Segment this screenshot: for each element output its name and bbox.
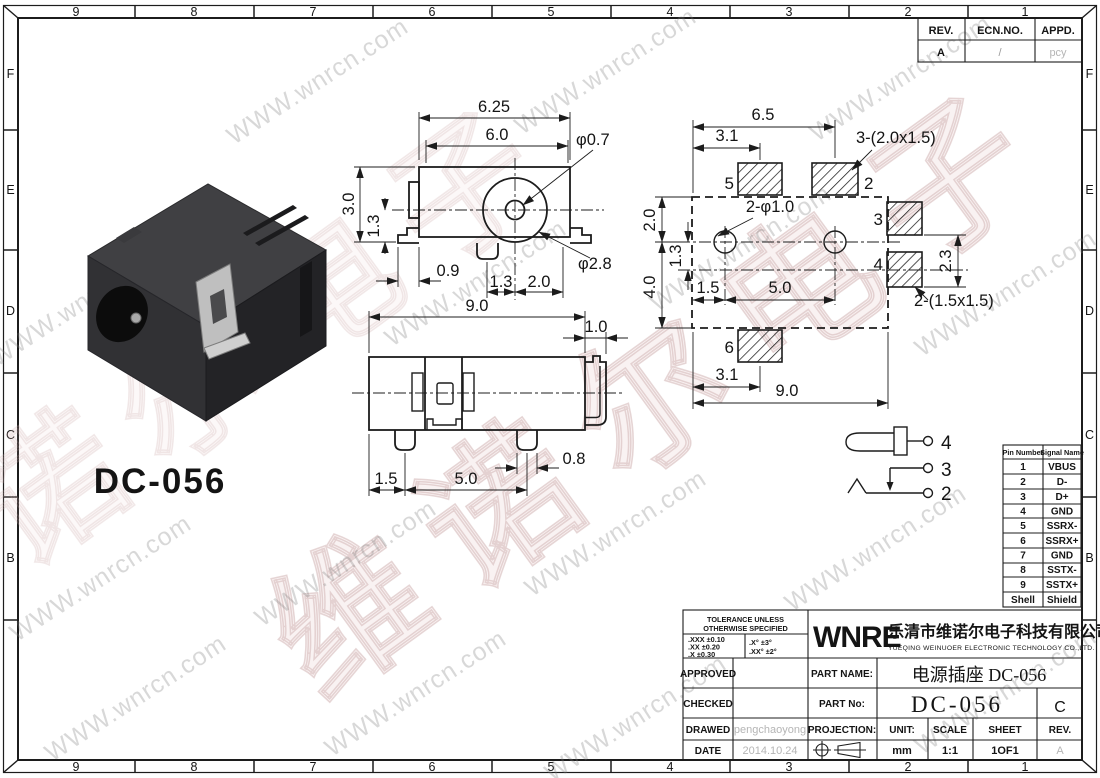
site-watermark: WWW.wnrcn.com <box>40 629 232 767</box>
projection-symbol <box>813 741 866 759</box>
zone-label: B <box>1085 551 1093 565</box>
sheet-label: SHEET <box>988 725 1021 736</box>
signal-name: SSTX- <box>1047 565 1076 576</box>
part-no-value: DC-056 <box>911 692 1003 717</box>
dim-label: 5.0 <box>769 279 792 297</box>
dim-label: 2.0 <box>641 209 659 232</box>
dim-label: 9.0 <box>776 382 799 400</box>
dim-label: φ0.7 <box>576 131 610 149</box>
zone-label: 1 <box>1022 5 1029 19</box>
zone-label: C <box>1085 428 1094 442</box>
zone-label: 9 <box>73 760 80 774</box>
pin-number: Shell <box>1011 595 1035 606</box>
pad-number: 2 <box>864 174 873 193</box>
pad-3 <box>887 202 922 235</box>
pin-table-header: Pin Number <box>1003 448 1044 457</box>
signal-name: SSTX+ <box>1046 580 1078 591</box>
dim-label: 3.0 <box>340 193 358 216</box>
signal-name: SSRX- <box>1047 521 1078 532</box>
rev-col-header: REV. <box>929 25 954 37</box>
zone-label: D <box>6 304 15 318</box>
dim-label: 5.0 <box>455 470 478 488</box>
part-name-value: 电源插座 DC-056 <box>912 665 1047 685</box>
pad-number: 6 <box>725 338 734 357</box>
signal-name: GND <box>1051 507 1073 518</box>
zone-label: 5 <box>548 5 555 19</box>
zone-label: 3 <box>786 760 793 774</box>
pad-number: 3 <box>874 210 883 229</box>
pad-5 <box>738 163 782 195</box>
dim-label: 0.8 <box>563 450 586 468</box>
tolerance-title: OTHERWISE SPECIFIED <box>703 624 788 633</box>
scale-label: SCALE <box>933 725 967 736</box>
pin-number: 8 <box>1020 565 1026 576</box>
zone-label: E <box>1085 183 1093 197</box>
part-label: DC-056 <box>94 462 227 501</box>
dim-label: 4.0 <box>641 276 659 299</box>
zone-label: 9 <box>73 5 80 19</box>
pin-table-header: Signal Name <box>1040 448 1084 457</box>
part-no-label: PART No: <box>819 699 865 710</box>
dim-label: 2-(1.5x1.5) <box>914 292 994 310</box>
dim-label: 3.1 <box>716 127 739 145</box>
contact-arrow <box>887 482 894 491</box>
company-name-en: YUEQING WEINUOER ELECTRONIC TECHNOLOGY C… <box>888 645 1095 652</box>
pin-table: Pin Number Signal Name 1 VBUS 2 D- 3 D+ … <box>1003 445 1084 607</box>
zone-label: 2 <box>905 5 912 19</box>
tolerance-title: TOLERANCE UNLESS <box>707 615 784 624</box>
pad-6 <box>738 330 782 362</box>
dim-label: 3-(2.0x1.5) <box>856 129 936 147</box>
checked-label: CHECKED <box>683 699 732 710</box>
zone-label: 1 <box>1022 760 1029 774</box>
dim-label: 2.0 <box>528 273 551 291</box>
signal-name: VBUS <box>1048 462 1076 473</box>
engineering-drawing: 9 8 7 6 5 4 3 2 1 9 8 7 6 5 4 3 2 1 F E … <box>0 0 1100 778</box>
pin-number: 4 <box>1020 507 1026 518</box>
rev-value: A <box>1056 745 1064 757</box>
zone-label: 8 <box>191 760 198 774</box>
signal-name: GND <box>1051 551 1073 562</box>
zone-label: D <box>1085 304 1094 318</box>
ecn-value: / <box>998 47 1002 59</box>
zone-label: F <box>7 67 15 81</box>
schematic-pin: 2 <box>941 484 952 505</box>
zone-label: 6 <box>429 760 436 774</box>
sheet-value: 1OF1 <box>991 745 1019 757</box>
pin-number: 5 <box>1020 521 1026 532</box>
tolerance-row: .X ±0.30 <box>688 650 715 659</box>
zone-label: E <box>6 183 14 197</box>
pin-number: 2 <box>1020 477 1026 488</box>
schematic-pin: 4 <box>941 433 952 454</box>
zone-label: 8 <box>191 5 198 19</box>
date-label: DATE <box>695 746 722 757</box>
dim-label: 1.5 <box>697 279 720 297</box>
signal-name: D- <box>1057 477 1068 488</box>
dim-label: 2-φ1.0 <box>746 198 794 216</box>
ecn-col-header: ECN.NO. <box>977 25 1023 37</box>
zone-label: 7 <box>310 760 317 774</box>
zone-label: 3 <box>786 5 793 19</box>
projection-label: PROJECTION: <box>808 725 876 736</box>
zone-label: 7 <box>310 5 317 19</box>
site-watermark: WWW.wnrcn.com <box>222 12 414 150</box>
tolerance-row: .X° ±3° <box>749 638 772 647</box>
pin-number: 1 <box>1020 462 1026 473</box>
date-value: 2014.10.24 <box>742 745 797 757</box>
dim-label: 1.5 <box>375 470 398 488</box>
zone-label: F <box>1086 67 1094 81</box>
unit-value: mm <box>892 745 912 757</box>
pin-number: 7 <box>1020 551 1026 562</box>
dim-label: 0.9 <box>437 262 460 280</box>
dim-label: 9.0 <box>466 297 489 315</box>
center-pin <box>131 313 141 323</box>
rev-label: REV. <box>1049 725 1072 736</box>
dim-label: 6.25 <box>478 98 510 116</box>
rev-table: REV. ECN.NO. APPD. A / pcy <box>918 18 1082 62</box>
drawed-label: DRAWED <box>686 725 730 736</box>
tolerance-row: .XX° ±2° <box>749 647 777 656</box>
part-name-label: PART NAME: <box>811 669 873 680</box>
pad-4 <box>887 252 922 287</box>
signal-name: D+ <box>1055 492 1068 503</box>
signal-name: Shield <box>1047 595 1077 606</box>
appd-value: pcy <box>1049 47 1067 59</box>
scale-value: 1:1 <box>942 745 958 757</box>
side-groove <box>300 261 312 337</box>
rev-value: A <box>937 47 945 59</box>
dim-label: 2.3 <box>937 250 955 273</box>
part-rev-letter: C <box>1054 699 1066 716</box>
approved-label: APPROVED <box>680 669 736 680</box>
drawing-sheet: 9 8 7 6 5 4 3 2 1 9 8 7 6 5 4 3 2 1 F E … <box>0 0 1100 778</box>
pad-number: 5 <box>725 174 734 193</box>
drawed-by: pengchaoyong <box>734 724 806 736</box>
dim-label: 6.5 <box>752 106 775 124</box>
unit-label: UNIT: <box>889 725 915 736</box>
dim-label: 1.0 <box>585 318 608 336</box>
site-watermark: WWW.wnrcn.com <box>510 2 702 140</box>
dim-label: 3.1 <box>716 366 739 384</box>
dim-label: 6.0 <box>486 126 509 144</box>
pin-number: 9 <box>1020 580 1026 591</box>
zone-label: 2 <box>905 760 912 774</box>
dim-label: 1.3 <box>490 273 513 291</box>
dim-label: 1.3 <box>365 215 383 238</box>
pad-2 <box>812 163 858 195</box>
dim-label: 1.3 <box>667 245 685 268</box>
zone-label: 4 <box>667 760 674 774</box>
company-name-cn: 乐清市维诺尔电子科技有限公司 <box>888 622 1100 641</box>
schematic-pin: 3 <box>941 460 952 481</box>
zone-label: 6 <box>429 5 436 19</box>
pad-number: 4 <box>874 255 883 274</box>
pin-number: 3 <box>1020 492 1026 503</box>
pin-number: 6 <box>1020 536 1026 547</box>
signal-name: SSRX+ <box>1045 536 1078 547</box>
appd-col-header: APPD. <box>1041 25 1075 37</box>
dim-label: φ2.8 <box>578 255 612 273</box>
